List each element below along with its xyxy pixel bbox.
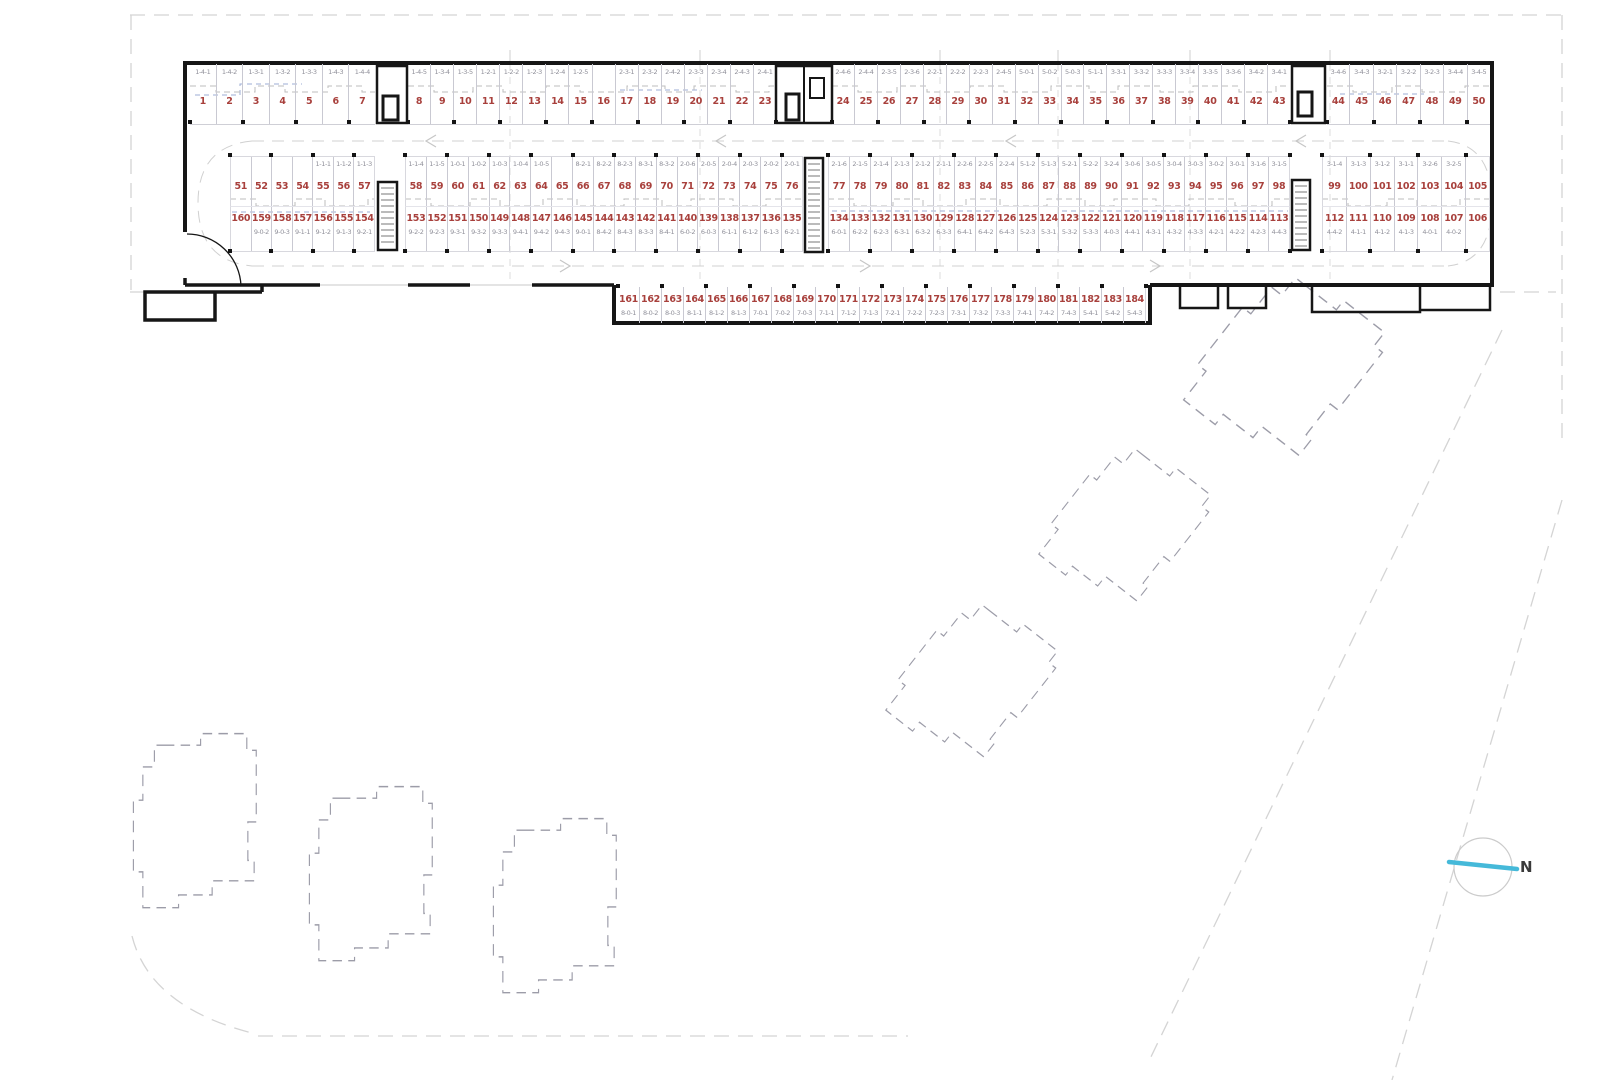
- column-marker: [636, 120, 640, 124]
- stall-number: 135: [776, 214, 808, 224]
- column-marker: [1204, 249, 1208, 253]
- column-marker: [612, 153, 616, 157]
- parking-stall: 7-0-2168: [772, 287, 794, 323]
- parking-stall: 106: [1466, 207, 1489, 251]
- floor-plan-canvas: 1-4-111-4-221-3-131-3-241-3-351-4-361-4-…: [0, 0, 1620, 1080]
- column-marker: [1320, 153, 1324, 157]
- column-marker: [1204, 153, 1208, 157]
- column-marker: [188, 120, 192, 124]
- column-marker: [445, 153, 449, 157]
- column-marker: [748, 284, 752, 288]
- column-marker: [780, 249, 784, 253]
- column-marker: [1144, 284, 1148, 288]
- column-marker: [403, 153, 407, 157]
- column-marker: [1036, 153, 1040, 157]
- column-marker: [792, 284, 796, 288]
- stall-number: 106: [1460, 214, 1495, 224]
- column-marker: [836, 284, 840, 288]
- parking-stall: 7-4-3181: [1058, 287, 1080, 323]
- parking-stall: 3-1-598: [1269, 157, 1289, 206]
- column-marker: [1120, 249, 1124, 253]
- column-marker: [1464, 249, 1468, 253]
- column-marker: [1036, 249, 1040, 253]
- parking-stall: 5-4-3184: [1124, 287, 1145, 323]
- stall-number: 23: [748, 97, 782, 107]
- parking-stall-group: 2-4-6242-4-4252-3-5262-3-6272-2-1282-2-2…: [832, 64, 1290, 125]
- column-marker: [1416, 153, 1420, 157]
- column-marker: [876, 120, 880, 124]
- stall-number: 105: [1460, 182, 1495, 192]
- parking-stall: 1-1-357: [354, 157, 374, 206]
- column-marker: [1078, 249, 1082, 253]
- parking-stall: 8-1-1164: [684, 287, 706, 323]
- column-marker: [1151, 120, 1155, 124]
- column-marker: [1059, 120, 1063, 124]
- column-marker: [994, 249, 998, 253]
- column-marker: [826, 249, 830, 253]
- column-marker: [1320, 249, 1324, 253]
- stall-code: 3-1-5: [1261, 161, 1297, 168]
- column-marker: [311, 153, 315, 157]
- stall-number: 76: [776, 182, 808, 192]
- parking-stall: 1-2-515: [569, 64, 592, 124]
- column-marker: [952, 249, 956, 253]
- parking-stall: 7-4-2180: [1036, 287, 1058, 323]
- parking-stall-group: 1-1-4581-1-5591-0-1601-0-2611-0-3621-0-4…: [405, 156, 803, 206]
- parking-stall: 7-1-2171: [838, 287, 860, 323]
- column-marker: [780, 153, 784, 157]
- column-marker: [696, 153, 700, 157]
- column-marker: [1105, 120, 1109, 124]
- stall-number: 154: [348, 214, 380, 224]
- column-marker: [1196, 120, 1200, 124]
- stall-code: 1-1-3: [346, 161, 382, 168]
- column-marker: [922, 120, 926, 124]
- parking-stall-group: 1609-0-21599-0-31589-1-11579-1-21569-1-3…: [230, 206, 375, 252]
- stall-number: 57: [348, 182, 380, 192]
- future-building-outline: [879, 585, 1065, 777]
- stall-code: 9-2-1: [346, 229, 382, 236]
- stall-code: 4-4-3: [1261, 229, 1297, 236]
- column-marker: [529, 153, 533, 157]
- parking-stall: 8-1-2165: [706, 287, 728, 323]
- parking-stall: 5-4-2183: [1102, 287, 1124, 323]
- column-marker: [590, 120, 594, 124]
- parking-stall: 7-1-1170: [816, 287, 838, 323]
- parking-stall: 7-3-1176: [948, 287, 970, 323]
- parking-stall: 8-0-1161: [618, 287, 640, 323]
- column-marker: [347, 120, 351, 124]
- parking-stall-group: 1-4-581-3-491-3-5101-2-1111-2-2121-2-313…: [408, 64, 776, 125]
- north-arrow: [1449, 838, 1517, 896]
- column-marker: [228, 153, 232, 157]
- future-building-outline: [1175, 254, 1393, 478]
- column-marker: [654, 153, 658, 157]
- stall-code: 6-2-1: [774, 229, 810, 236]
- column-marker: [571, 249, 575, 253]
- column-marker: [1120, 153, 1124, 157]
- column-marker: [498, 120, 502, 124]
- parking-stall: 8-0-3163: [662, 287, 684, 323]
- north-arrow-circle: [1454, 838, 1512, 896]
- parking-stall: 7-3-2177: [970, 287, 992, 323]
- parking-stall: 3-4-550: [1468, 64, 1490, 124]
- column-marker: [880, 284, 884, 288]
- parking-stall-group: 9-2-21539-2-31529-3-11519-3-21509-3-3149…: [405, 206, 803, 252]
- column-marker: [910, 153, 914, 157]
- parking-stall: 7-2-1173: [882, 287, 904, 323]
- stall-code: 1-4-4: [341, 69, 383, 76]
- parking-stall-group: 4-4-21124-1-11114-1-21104-1-31094-0-1108…: [1322, 206, 1490, 252]
- parking-stall-group: 2-1-6772-1-5782-1-4792-1-3802-1-2812-1-1…: [828, 156, 1290, 206]
- parking-stall: 105: [1466, 157, 1489, 206]
- parking-stall-group: 6-0-11346-2-21336-2-31326-3-11316-3-2130…: [828, 206, 1290, 252]
- column-marker: [967, 120, 971, 124]
- column-marker: [1465, 120, 1469, 124]
- stall-code: 3-4-1: [1260, 69, 1298, 76]
- column-marker: [682, 120, 686, 124]
- column-marker: [612, 249, 616, 253]
- column-marker: [1056, 284, 1060, 288]
- column-marker: [1162, 153, 1166, 157]
- stall-code: 3-4-5: [1460, 69, 1498, 76]
- column-marker: [774, 120, 778, 124]
- column-marker: [616, 284, 620, 288]
- parking-stall: 4-4-3113: [1269, 207, 1289, 251]
- column-marker: [1246, 249, 1250, 253]
- column-marker: [1418, 120, 1422, 124]
- parking-stall: 9-2-1154: [354, 207, 374, 251]
- parking-stall: 7-0-1167: [750, 287, 772, 323]
- parking-stall: 6-2-1135: [782, 207, 802, 251]
- parking-stall: 7-3-3178: [992, 287, 1014, 323]
- parking-stall: 7-4-1179: [1014, 287, 1036, 323]
- parking-stall-group: 3-4-6443-4-3453-2-1463-2-2473-2-3483-4-4…: [1327, 64, 1490, 125]
- column-marker: [728, 120, 732, 124]
- column-marker: [868, 153, 872, 157]
- parking-stall-group: 3-1-4993-1-31003-1-21013-1-11023-2-61033…: [1322, 156, 1490, 206]
- column-marker: [826, 153, 830, 157]
- column-marker: [738, 249, 742, 253]
- stall-number: 7: [343, 97, 381, 107]
- future-building-outline: [133, 734, 256, 908]
- column-marker: [1246, 153, 1250, 157]
- column-marker: [487, 153, 491, 157]
- parking-stall-group: 1-4-111-4-221-3-131-3-241-3-351-4-361-4-…: [190, 64, 375, 125]
- column-marker: [228, 249, 232, 253]
- column-marker: [1368, 249, 1372, 253]
- column-marker: [952, 153, 956, 157]
- parking-stall: 8-1-3166: [728, 287, 750, 323]
- column-marker: [1368, 153, 1372, 157]
- stair-shaft: [805, 158, 823, 252]
- column-marker: [868, 249, 872, 253]
- column-marker: [571, 153, 575, 157]
- column-marker: [1288, 153, 1292, 157]
- column-marker: [529, 249, 533, 253]
- future-building-outline: [1032, 429, 1218, 621]
- column-marker: [294, 120, 298, 124]
- stall-number: 98: [1263, 182, 1295, 192]
- parking-stall: 2-0-176: [782, 157, 802, 206]
- column-marker: [1372, 120, 1376, 124]
- stall-number: 50: [1462, 97, 1496, 107]
- stall-number: 43: [1262, 97, 1296, 107]
- column-marker: [704, 284, 708, 288]
- stall-code: 2-4-1: [746, 69, 784, 76]
- column-marker: [924, 284, 928, 288]
- grid-ticks: [510, 50, 1330, 61]
- parking-stall-group: 515253541-1-1551-1-2561-1-357: [230, 156, 375, 206]
- stall-code: 2-0-1: [774, 161, 810, 168]
- column-marker: [241, 120, 245, 124]
- column-marker: [1162, 249, 1166, 253]
- north-label: N: [1520, 858, 1533, 876]
- stall-code: 5-4-3: [1116, 310, 1153, 317]
- parking-stall: 1-4-47: [349, 64, 375, 124]
- column-marker: [269, 249, 273, 253]
- column-marker: [1012, 284, 1016, 288]
- column-marker: [403, 249, 407, 253]
- parking-stall: 7-0-3169: [794, 287, 816, 323]
- column-marker: [452, 120, 456, 124]
- column-marker: [1288, 249, 1292, 253]
- column-marker: [487, 249, 491, 253]
- stair-shaft: [378, 182, 397, 250]
- column-marker: [1242, 120, 1246, 124]
- parking-stall: 8-0-2162: [640, 287, 662, 323]
- parking-stall: 7-1-3172: [860, 287, 882, 323]
- column-marker: [445, 249, 449, 253]
- column-marker: [1078, 153, 1082, 157]
- north-arrow-needle: [1449, 862, 1517, 869]
- column-marker: [1416, 249, 1420, 253]
- parking-stall: 5-4-1182: [1080, 287, 1102, 323]
- column-marker: [352, 153, 356, 157]
- parking-stall: 3-4-143: [1268, 64, 1290, 124]
- future-buildings: [133, 254, 1392, 993]
- column-marker: [660, 284, 664, 288]
- column-marker: [696, 249, 700, 253]
- parking-stall: 2-4-123: [754, 64, 776, 124]
- future-building-outline: [309, 787, 432, 961]
- column-marker: [269, 153, 273, 157]
- column-marker: [654, 249, 658, 253]
- parking-stall: 7-2-2174: [904, 287, 926, 323]
- stall-number: 113: [1263, 214, 1295, 224]
- parking-stall: 7-2-3175: [926, 287, 948, 323]
- column-marker: [830, 120, 834, 124]
- column-marker: [406, 120, 410, 124]
- column-marker: [544, 120, 548, 124]
- column-marker: [994, 153, 998, 157]
- column-marker: [1100, 284, 1104, 288]
- column-marker: [1325, 120, 1329, 124]
- stall-number: 184: [1118, 295, 1151, 305]
- column-marker: [968, 284, 972, 288]
- column-marker: [1288, 120, 1292, 124]
- column-marker: [1013, 120, 1017, 124]
- column-marker: [910, 249, 914, 253]
- column-marker: [1464, 153, 1468, 157]
- future-building-outline: [493, 819, 616, 993]
- column-marker: [738, 153, 742, 157]
- parking-stall-group: 8-0-11618-0-21628-0-31638-1-11648-1-2165…: [618, 287, 1146, 323]
- column-marker: [311, 249, 315, 253]
- column-marker: [352, 249, 356, 253]
